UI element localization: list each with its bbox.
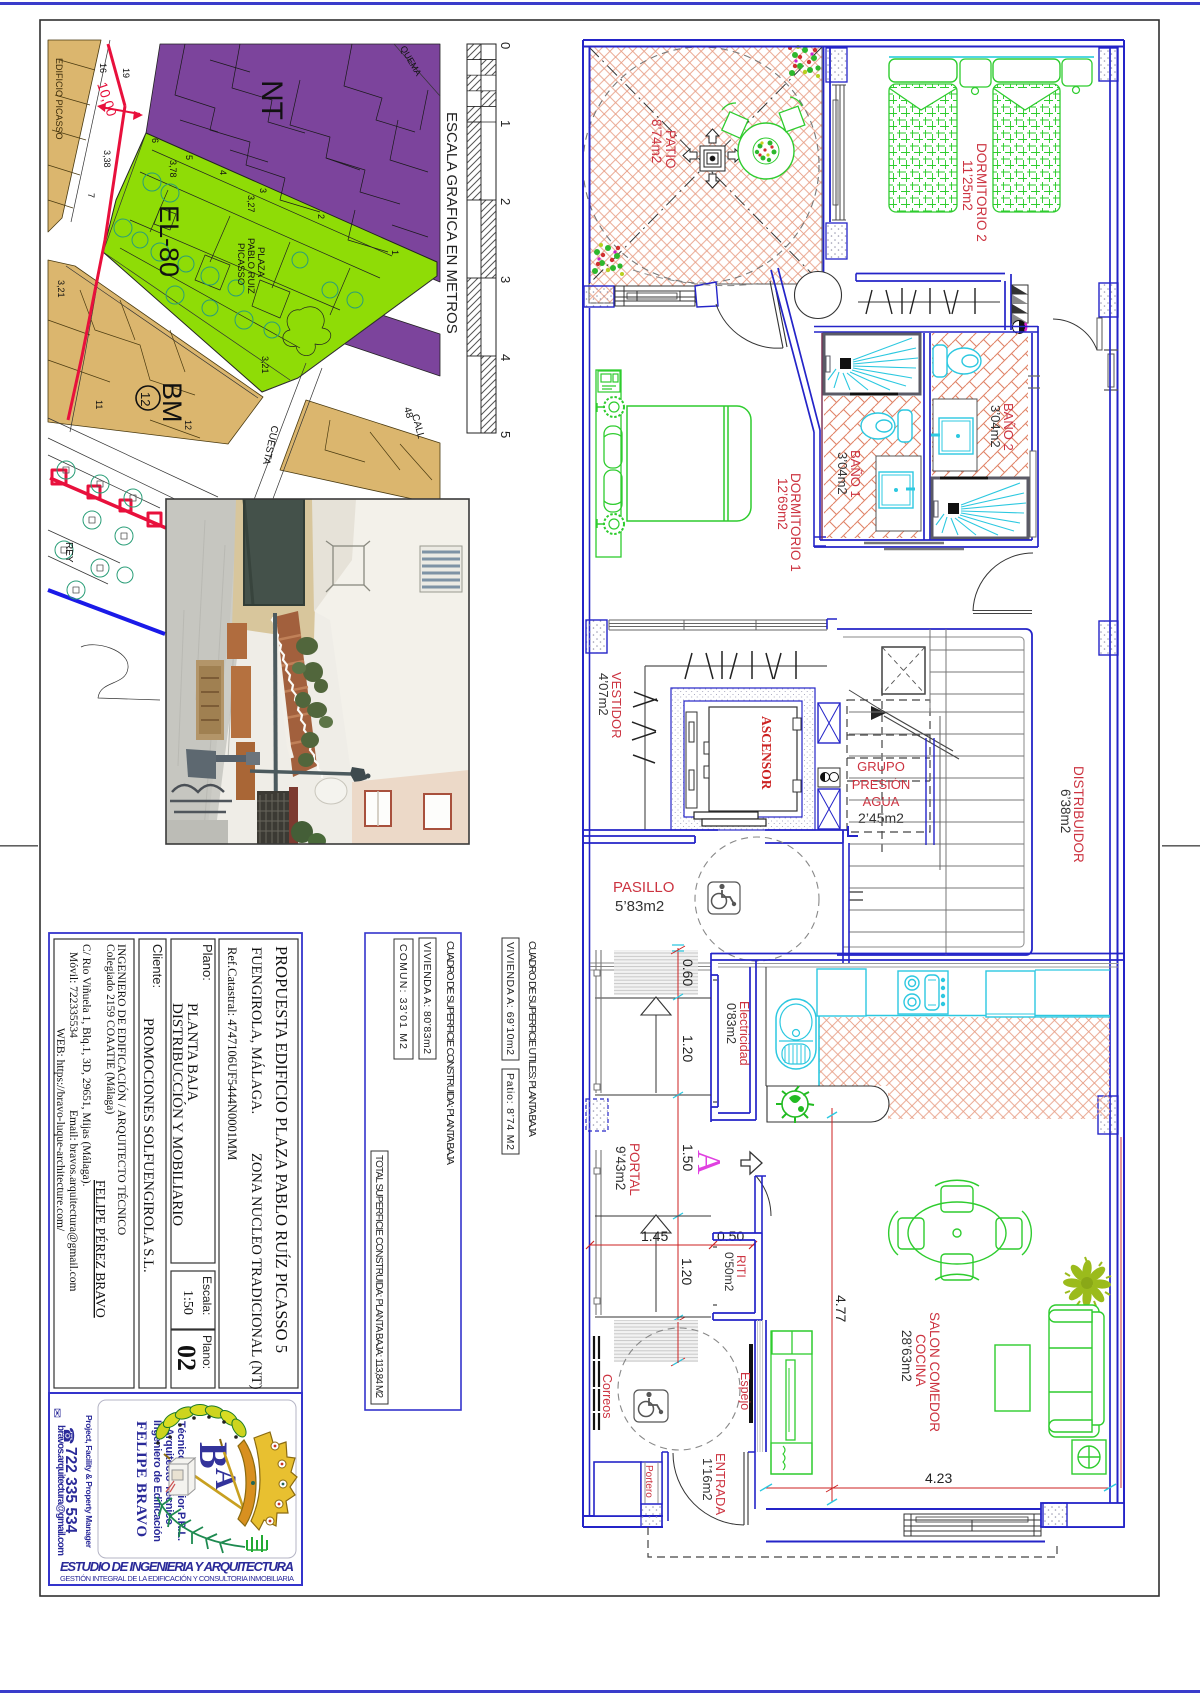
svg-text:28’63m2: 28’63m2 (899, 1330, 914, 1382)
svg-text:3: 3 (258, 188, 268, 193)
svg-text:1: 1 (498, 120, 513, 127)
svg-text:Plano:: Plano: (200, 1335, 214, 1369)
svg-text:WEB: https://bravo-luque-arc: WEB: https://bravo-luque-architecture.co… (54, 1028, 66, 1232)
svg-text:3,78: 3,78 (168, 160, 178, 178)
svg-text:19: 19 (121, 68, 131, 78)
svg-text:ASCENSOR: ASCENSOR (759, 716, 774, 790)
svg-text:4.77: 4.77 (833, 1295, 849, 1322)
svg-text:Project, Facility & Property M: Project, Facility & Property Manager (84, 1415, 94, 1549)
svg-text:PROPUESTA EDIFICIO PLAZA PABLO: PROPUESTA EDIFICIO PLAZA PABLO RUÍZ PICA… (272, 946, 291, 1353)
svg-text:3’04m2: 3’04m2 (988, 405, 1003, 448)
svg-text:7: 7 (86, 193, 96, 198)
svg-text:A: A (690, 1150, 727, 1175)
svg-text:PICASSO: PICASSO (235, 243, 246, 285)
svg-text:C/ Rio Viñuela 1, Blq.1, 3D, 2: C/ Rio Viñuela 1, Blq.1, 3D, 29651, Mija… (80, 944, 92, 1187)
svg-text:2: 2 (316, 214, 326, 219)
svg-text:CUADRO DE SUPERFICIE UTILES:: CUADRO DE SUPERFICIE UTILES: PLANTA BAJA (526, 941, 538, 1137)
svg-text:10,00: 10,00 (94, 80, 120, 118)
svg-text:Patio: 8’74 M2: Patio: 8’74 M2 (504, 1073, 516, 1150)
svg-text:1.45: 1.45 (641, 1228, 668, 1244)
svg-text:VIVIENDA A: 80’83m2: VIVIENDA A: 80’83m2 (421, 942, 433, 1054)
svg-text:Email: bravos.arquitectura@g: Email: bravos.arquitectura@gmail.com (67, 1110, 79, 1291)
svg-text:Portero: Portero (643, 1465, 654, 1498)
svg-text:6’38m2: 6’38m2 (1058, 789, 1073, 833)
svg-text:Colegiado 2159 COAATIE (Málaga: Colegiado 2159 COAATIE (Málaga) (104, 944, 116, 1114)
svg-text:3,21: 3,21 (56, 280, 66, 298)
svg-text:DORMITORIO 2: DORMITORIO 2 (974, 143, 989, 242)
svg-text:6: 6 (150, 138, 160, 143)
svg-text:3,21: 3,21 (260, 356, 270, 374)
svg-text:DISTRIBUCCIÓN Y MOBILIARIO: DISTRIBUCCIÓN Y MOBILIARIO (169, 1003, 186, 1226)
svg-text:12: 12 (138, 392, 153, 406)
svg-text:PLANTA BAJA: PLANTA BAJA (184, 1003, 200, 1102)
svg-text:Correos: Correos (600, 1374, 614, 1418)
svg-text:TOTAL SUPERFICIE CONSTRUIDA:: TOTAL SUPERFICIE CONSTRUIDA: PLANTA BAJA… (373, 1155, 384, 1398)
svg-text:4: 4 (218, 170, 228, 175)
svg-text:INGENIERO DE EDIFICACIÓN / ARQ: INGENIERO DE EDIFICACIÓN / ARQUITECTO TÉ… (115, 944, 129, 1235)
svg-text:FUENGIROLA, MÁLAGA.: FUENGIROLA, MÁLAGA. (248, 947, 265, 1114)
svg-text:1’16m2: 1’16m2 (700, 1458, 715, 1501)
svg-text:3’04m2: 3’04m2 (835, 452, 850, 495)
svg-text:EDIFICIO PICASSO: EDIFICIO PICASSO (54, 58, 64, 140)
svg-text:11’25m2: 11’25m2 (960, 160, 975, 211)
svg-text:0’50m2: 0’50m2 (722, 1252, 736, 1292)
svg-text:0’83m2: 0’83m2 (724, 1003, 738, 1044)
svg-text:Cliente:: Cliente: (150, 944, 165, 988)
svg-text:Espejo: Espejo (738, 1372, 752, 1410)
svg-text:12’69m2: 12’69m2 (775, 478, 790, 530)
svg-text:9’43m2: 9’43m2 (613, 1146, 628, 1190)
svg-text:1.20: 1.20 (679, 1258, 695, 1285)
svg-text:ESCALA GRAFICA EN METROS: ESCALA GRAFICA EN METROS (443, 112, 460, 334)
svg-text:Plano:: Plano: (200, 944, 215, 981)
svg-text:11: 11 (94, 400, 104, 409)
svg-text:2’45m2: 2’45m2 (858, 810, 904, 826)
svg-text:1: 1 (390, 250, 400, 255)
svg-text:4.23: 4.23 (925, 1470, 952, 1486)
svg-text:1:50: 1:50 (180, 1290, 195, 1315)
svg-text:0.60: 0.60 (680, 959, 696, 986)
svg-text:FELIPE PÉREZ BRAVO: FELIPE PÉREZ BRAVO (93, 1180, 108, 1318)
svg-text:FELIPE BRAVO: FELIPE BRAVO (133, 1421, 149, 1537)
svg-text:✉: ✉ (50, 1408, 64, 1418)
svg-text:0.50: 0.50 (717, 1228, 744, 1244)
svg-text:NT: NT (255, 80, 288, 120)
svg-text:5: 5 (184, 155, 194, 160)
svg-text:Ref.Catastral: 4747106UF5444N0: Ref.Catastral: 4747106UF5444N0001MM (225, 947, 239, 1160)
svg-text:ESTUDIO DE INGENIERIA Y AR: ESTUDIO DE INGENIERIA Y ARQUITECTURA (60, 1559, 294, 1574)
svg-text:3: 3 (498, 276, 513, 283)
svg-text:4’07m2: 4’07m2 (596, 673, 611, 716)
svg-text:5’83m2: 5’83m2 (615, 898, 664, 915)
svg-text:bravos.arquitectura@gmail.com: bravos.arquitectura@gmail.com (55, 1425, 66, 1556)
svg-text:5: 5 (498, 431, 513, 438)
svg-text:REY: REY (63, 542, 74, 563)
svg-text:SALON COMEDOR: SALON COMEDOR (927, 1312, 942, 1432)
svg-text:PASILLO: PASILLO (613, 879, 674, 896)
svg-text:EL-80: EL-80 (154, 205, 184, 277)
svg-text:PATIO: PATIO (663, 130, 678, 169)
svg-text:1.20: 1.20 (680, 1035, 696, 1062)
svg-text:AGUA: AGUA (863, 794, 900, 809)
svg-text:Electricidad: Electricidad (737, 1001, 751, 1066)
svg-text:3,27: 3,27 (246, 195, 256, 213)
svg-text:CUESTA: CUESTA (260, 424, 280, 466)
svg-text:COCINA: COCINA (913, 1334, 928, 1387)
svg-text:PROMOCIONES SOLFUENGIROLA S.L.: PROMOCIONES SOLFUENGIROLA S.L. (140, 1018, 156, 1273)
svg-text:ZONA NUCLEO TRADICIONAL (NT): ZONA NUCLEO TRADICIONAL (NT) (248, 1153, 264, 1390)
svg-text:VIVIENDA A: 69’10m2: VIVIENDA A: 69’10m2 (504, 942, 516, 1055)
svg-text:Móvil: 722335534: Móvil: 722335534 (67, 952, 79, 1038)
svg-text:GRUPO: GRUPO (857, 759, 905, 774)
svg-text:16: 16 (98, 63, 108, 73)
svg-text:GESTIÓN INTEGRAL DE LA EDI: GESTIÓN INTEGRAL DE LA EDIFICACIÓN Y CON… (60, 1574, 294, 1583)
svg-text:4: 4 (498, 354, 513, 361)
svg-text:8’74m2: 8’74m2 (649, 119, 664, 163)
svg-text:3,38: 3,38 (102, 150, 112, 168)
svg-text:2: 2 (498, 198, 513, 205)
svg-text:12: 12 (183, 420, 193, 430)
svg-text:CUADRO DE SUPERFICIE CONSTRUID: CUADRO DE SUPERFICIE CONSTRUIDA: PLANTA … (444, 941, 456, 1165)
svg-text:BM: BM (157, 382, 187, 423)
svg-text:PRESIÓN: PRESIÓN (852, 777, 911, 792)
svg-text:Escala:: Escala: (200, 1276, 214, 1315)
svg-text:0: 0 (498, 42, 513, 49)
svg-text:02: 02 (172, 1345, 201, 1371)
svg-text:PORTAL: PORTAL (627, 1143, 642, 1196)
